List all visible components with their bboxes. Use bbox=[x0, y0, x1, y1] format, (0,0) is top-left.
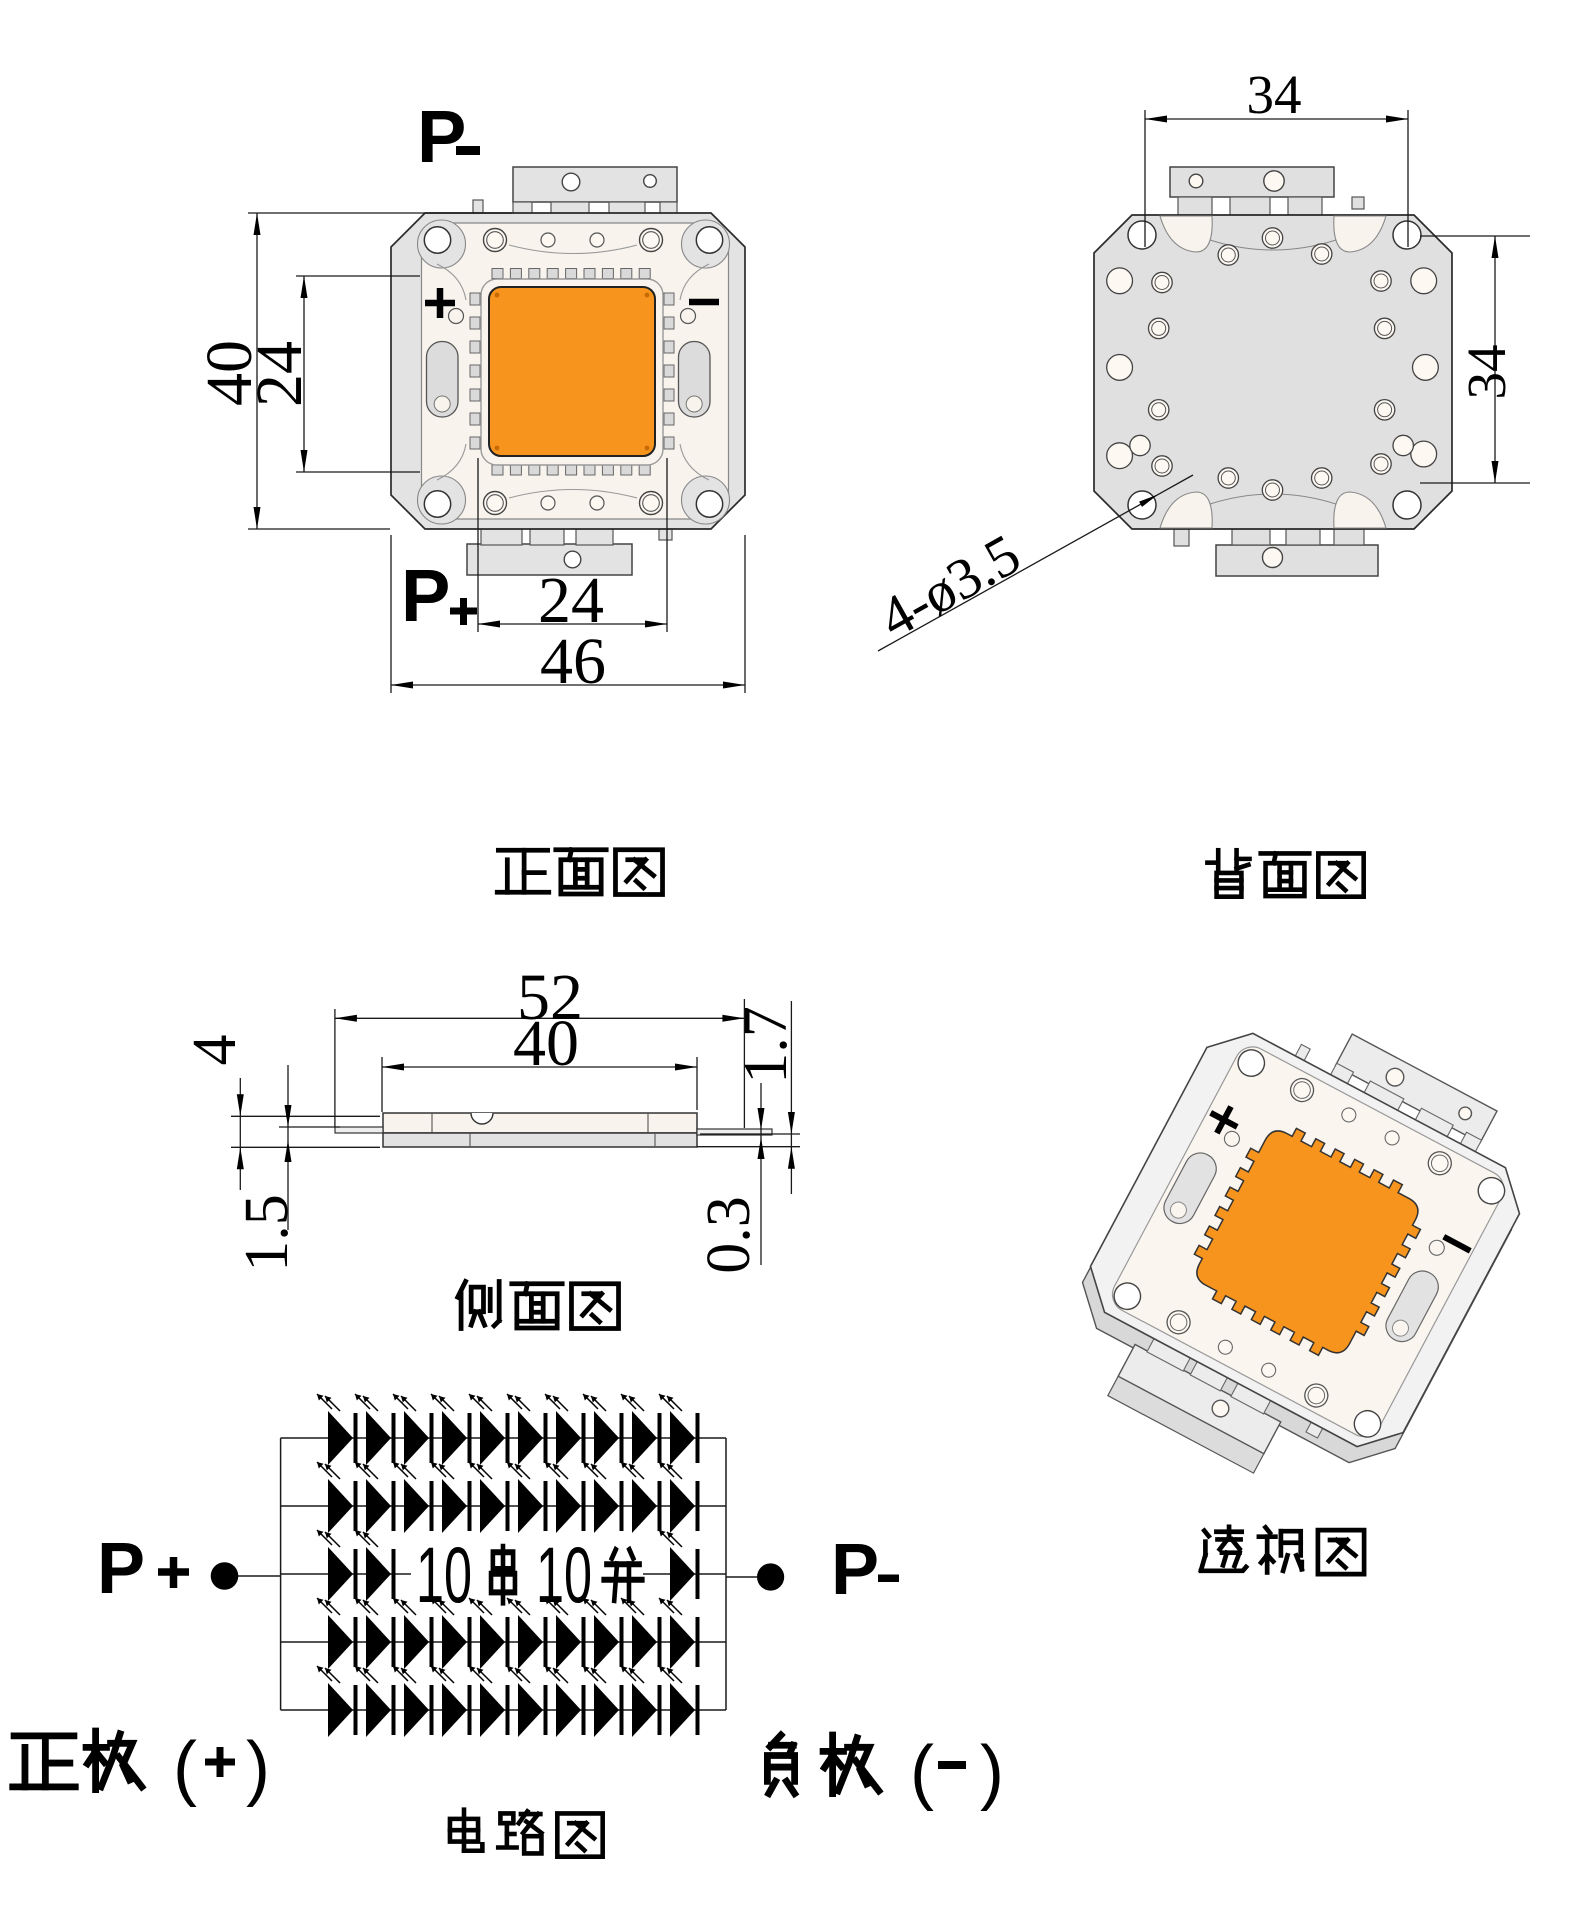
svg-text:): ) bbox=[980, 1732, 1004, 1812]
svg-text:10: 10 bbox=[536, 1530, 592, 1619]
svg-text:40: 40 bbox=[513, 1007, 579, 1080]
svg-text:4-ø3.5: 4-ø3.5 bbox=[868, 521, 1030, 651]
svg-text:4: 4 bbox=[181, 1035, 249, 1066]
svg-text:46: 46 bbox=[540, 625, 606, 698]
svg-text:1.5: 1.5 bbox=[233, 1194, 301, 1272]
svg-text:P: P bbox=[97, 1529, 145, 1609]
svg-text:P: P bbox=[417, 95, 466, 178]
svg-text:34: 34 bbox=[1247, 64, 1302, 125]
svg-text:P: P bbox=[831, 1530, 879, 1610]
svg-text:1.7: 1.7 bbox=[732, 1006, 800, 1084]
svg-text:(: ( bbox=[173, 1728, 197, 1808]
svg-text:(: ( bbox=[910, 1732, 934, 1812]
svg-text:P: P bbox=[401, 554, 450, 637]
svg-text:34: 34 bbox=[1456, 345, 1517, 400]
svg-text:0.3: 0.3 bbox=[695, 1196, 763, 1274]
svg-text:24: 24 bbox=[243, 341, 316, 407]
svg-text:): ) bbox=[246, 1728, 270, 1808]
